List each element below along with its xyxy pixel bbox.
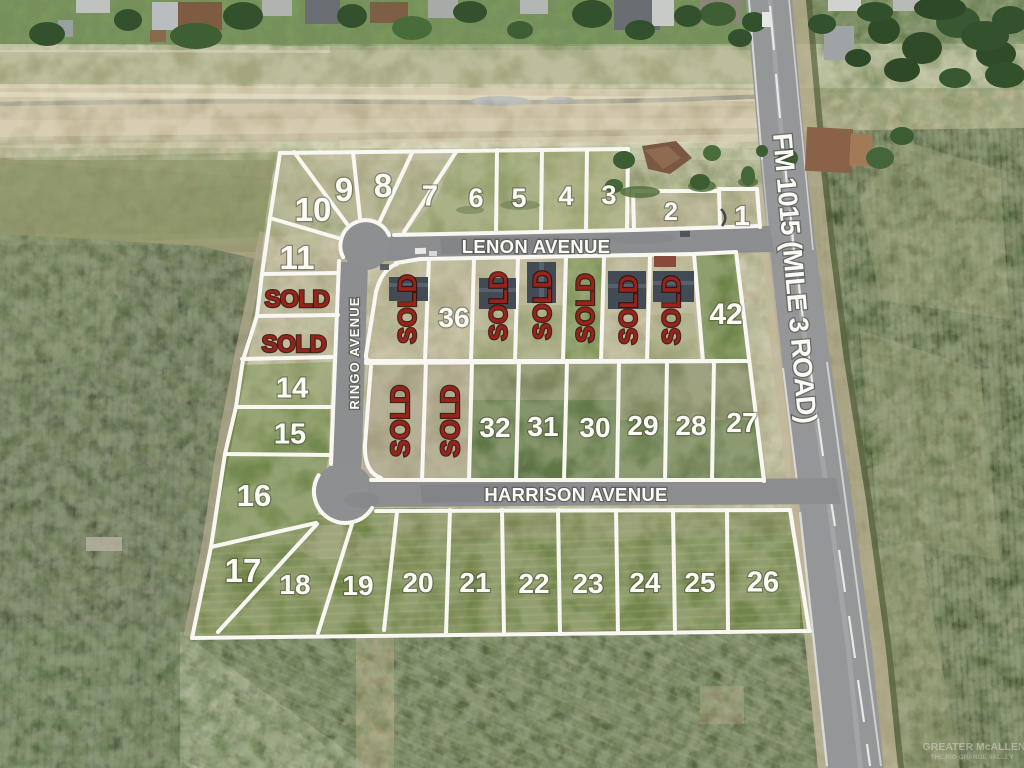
svg-text:10: 10	[295, 191, 332, 228]
svg-text:THE RIO GRANDE VALLEY: THE RIO GRANDE VALLEY	[930, 754, 1014, 761]
svg-text:LENON AVENUE: LENON AVENUE	[462, 236, 611, 257]
svg-text:HARRISON AVENUE: HARRISON AVENUE	[484, 484, 667, 505]
svg-text:18: 18	[279, 569, 310, 600]
svg-text:14: 14	[276, 373, 308, 405]
svg-text:2: 2	[664, 198, 678, 226]
svg-text:11: 11	[280, 239, 315, 276]
svg-text:27: 27	[726, 407, 757, 438]
svg-text:42: 42	[709, 298, 742, 331]
svg-text:24: 24	[629, 567, 661, 598]
svg-text:22: 22	[518, 568, 549, 599]
svg-text:RINGO AVENUE: RINGO AVENUE	[347, 296, 362, 409]
svg-text:25: 25	[684, 567, 715, 598]
svg-text:7: 7	[422, 181, 438, 213]
svg-text:GREATER McALLEN: GREATER McALLEN	[922, 741, 1024, 753]
svg-text:SOLD: SOLD	[658, 275, 686, 344]
svg-text:5: 5	[511, 183, 526, 213]
svg-text:SOLD: SOLD	[615, 275, 643, 344]
svg-text:20: 20	[402, 567, 433, 598]
svg-text:SOLD: SOLD	[529, 270, 557, 339]
svg-text:29: 29	[627, 410, 658, 441]
svg-text:SOLD: SOLD	[385, 385, 415, 457]
svg-text:SOLD: SOLD	[435, 385, 465, 457]
svg-text:9: 9	[335, 171, 353, 208]
svg-text:17: 17	[225, 552, 262, 589]
svg-text:31: 31	[527, 411, 558, 442]
svg-text:SOLD: SOLD	[262, 331, 327, 358]
svg-text:26: 26	[747, 567, 779, 599]
svg-text:1: 1	[734, 200, 750, 231]
svg-text:28: 28	[675, 410, 706, 441]
svg-text:19: 19	[342, 570, 373, 601]
svg-text:SOLD: SOLD	[572, 273, 600, 342]
svg-text:36: 36	[438, 302, 469, 333]
svg-text:4: 4	[558, 181, 573, 211]
svg-text:8: 8	[374, 167, 392, 204]
svg-text:30: 30	[579, 412, 610, 443]
svg-text:3: 3	[601, 180, 616, 210]
svg-text:SOLD: SOLD	[485, 271, 513, 340]
svg-text:SOLD: SOLD	[394, 274, 422, 343]
svg-text:23: 23	[572, 568, 603, 599]
svg-text:6: 6	[468, 183, 483, 213]
svg-text:15: 15	[274, 419, 306, 451]
svg-text:32: 32	[479, 412, 510, 443]
svg-text:21: 21	[459, 567, 490, 598]
svg-text:16: 16	[237, 478, 271, 513]
svg-text:SOLD: SOLD	[265, 286, 330, 313]
